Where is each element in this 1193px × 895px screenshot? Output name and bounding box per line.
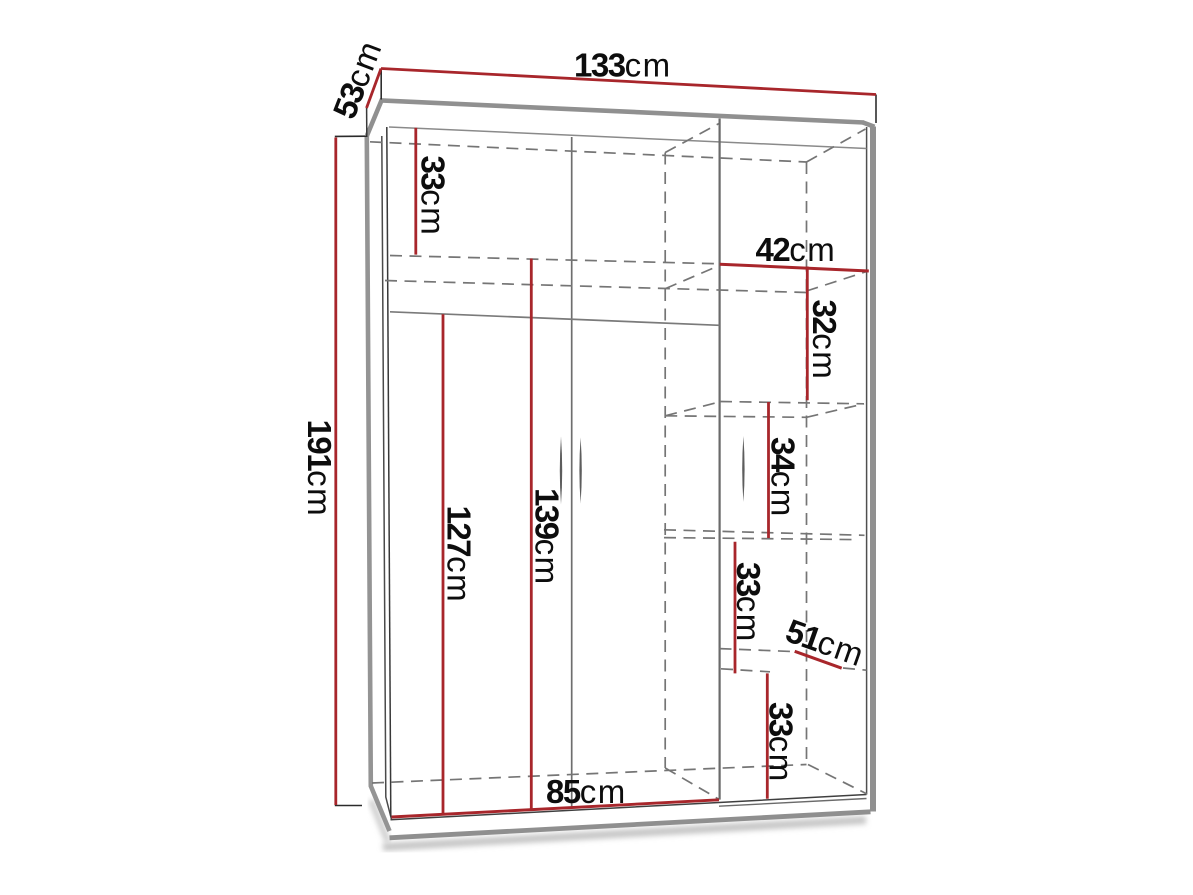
svg-text:33cm: 33cm xyxy=(415,156,452,237)
svg-text:85cm: 85cm xyxy=(546,773,627,810)
svg-text:139cm: 139cm xyxy=(529,488,566,586)
svg-text:32cm: 32cm xyxy=(806,300,843,381)
svg-text:191cm: 191cm xyxy=(301,420,338,518)
svg-text:42cm: 42cm xyxy=(756,231,837,268)
svg-text:33cm: 33cm xyxy=(763,702,800,783)
svg-text:33cm: 33cm xyxy=(730,562,767,643)
svg-text:127cm: 127cm xyxy=(441,506,478,604)
svg-text:133cm: 133cm xyxy=(574,47,672,84)
svg-text:34cm: 34cm xyxy=(765,437,802,518)
